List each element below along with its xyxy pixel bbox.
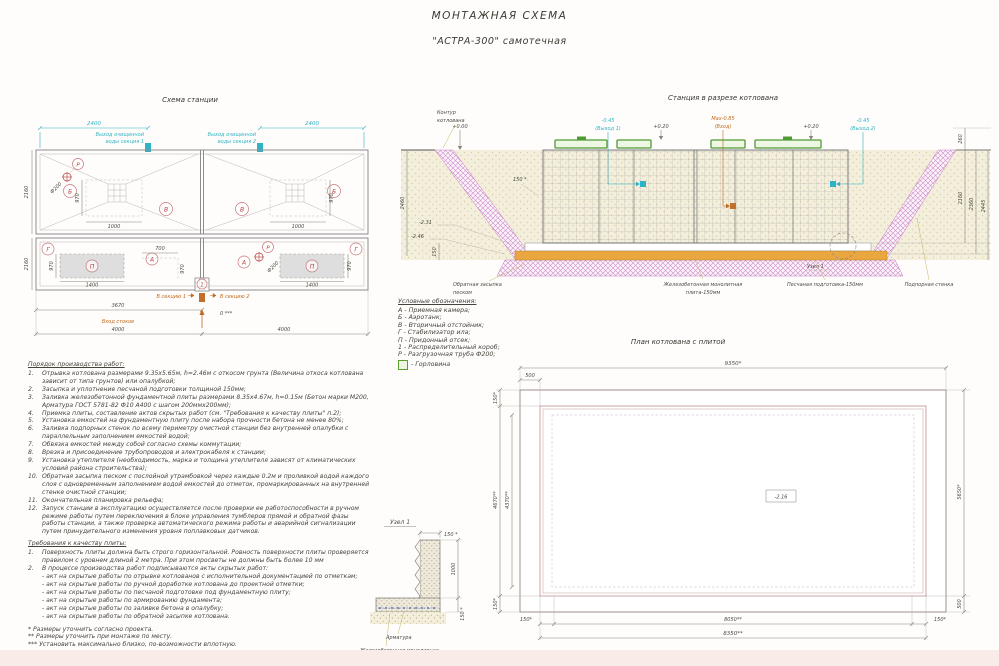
dim-1400-right: 1400 <box>306 283 319 289</box>
slab-detail <box>376 598 440 612</box>
quality-title: Требования к качеству плиты: <box>28 540 372 548</box>
dim-150-b2: 150* <box>934 617 947 623</box>
discharge-pipe-symbol-top <box>62 172 72 182</box>
pit-plan-drawing: План котлована с плитой -2.16 9350* 500 … <box>478 330 999 660</box>
dim-150-top-left: 150* <box>493 391 499 404</box>
to-section2-arrow <box>210 294 216 298</box>
pit-contour <box>520 390 946 612</box>
dim-8350: 8350** <box>723 631 743 637</box>
outlet1-label-line1: Выход очищенной <box>96 132 145 138</box>
legend-item: А - Приемная камера; <box>398 307 576 314</box>
outlet1-pipe-marker <box>145 143 151 152</box>
slab-label-line2: плита-150мм <box>686 290 721 296</box>
elev-slab-top: -2.31 <box>419 220 432 226</box>
compartment-letter-p2: П <box>310 264 315 271</box>
elev-inlet-note: (Вход) <box>715 124 732 130</box>
act-item: - акт на скрытые работы по отрывке котло… <box>42 573 372 581</box>
dim-2160-section: 2160 <box>958 192 964 205</box>
act-item: - акт на скрытые работы по обратной засы… <box>42 613 372 621</box>
drawing-subtitle: "АСТРА-300" самотечная <box>0 36 999 47</box>
dim-150-b1: 150* <box>520 617 533 623</box>
compartment-letter-p1: П <box>90 264 95 271</box>
footnote: * Размеры уточнить согласно проекта. <box>28 626 372 634</box>
hidden-works-acts: - акт на скрытые работы по отрывке котло… <box>28 573 372 621</box>
section-view-title: Станция в разрезе котлована <box>668 94 778 102</box>
compartment-letter-v2: В <box>240 207 244 214</box>
dim-260: 260 <box>958 134 964 144</box>
slab-label-line1: Железобетонная монолитная <box>663 282 743 288</box>
dim-970-bot-right: 970 <box>347 261 353 271</box>
to-section2-label: В секцию 2 <box>220 294 250 300</box>
sheet-bottom-strip <box>0 650 999 666</box>
inlet-label: Вход стоков <box>102 319 134 325</box>
dim-500-bottom: 500 <box>957 599 963 609</box>
legend-item: Б - Аэротанк; <box>398 314 576 321</box>
dim-4000-right: 4000 <box>278 327 291 333</box>
tank-covers <box>555 137 821 149</box>
rebar-label: Арматура <box>385 635 412 641</box>
dim-4370: 4370** <box>505 491 511 509</box>
dim-1000-wall: 1000 <box>451 563 457 576</box>
outlet1-label-line2: воды секция 1 <box>106 139 144 145</box>
drawing-title: МОНТАЖНАЯ СХЕМА <box>0 10 999 22</box>
pit-contour-label-line1: Контур <box>437 110 456 116</box>
sand-prep-label: Песчаная подготовка-150мм <box>787 282 863 288</box>
work-order-item: 6.Заливка подпорных стенок по всему пери… <box>28 425 372 441</box>
work-order-item: 7.Обвязка емкостей между собой согласно … <box>28 441 372 449</box>
elev-0.20-right: +0.20 <box>803 124 818 130</box>
quality-item: 1.Поверхность плиты должна быть строго г… <box>28 549 372 565</box>
outlet2-pipe-marker <box>257 143 263 152</box>
quality-requirements: Требования к качеству плиты: 1.Поверхнос… <box>28 540 372 620</box>
outlet2-pipe-section <box>830 181 836 187</box>
retaining-wall-bottom <box>497 260 903 276</box>
compartment-letter-v1: В <box>164 207 168 214</box>
marker-distribution-box: 1 <box>200 283 204 289</box>
elev-max-inlet: Мах-0.85 <box>711 116 734 122</box>
dim-150-gap: 150 * <box>513 177 527 183</box>
sand-prep-layer <box>515 251 887 260</box>
elev-outlet2-note: (Выход 2) <box>850 126 876 132</box>
elev-0.20-left: +0.20 <box>653 124 668 130</box>
pit-bottom-elevation: -2.16 <box>775 495 788 501</box>
cover-hatch-icon <box>398 360 408 370</box>
to-section1-label: В секцию 1 <box>157 294 187 300</box>
station-plan-title: Схема станции <box>162 96 218 104</box>
dim-5650: 5650* <box>957 484 963 500</box>
dim-1000-right: 1000 <box>292 224 305 230</box>
station-plan-drawing: Схема станции 2400 2400 Выход очищенной … <box>20 88 392 360</box>
dim-2160-top: 2160 <box>24 186 30 199</box>
dim-1000-left: 1000 <box>108 224 121 230</box>
pit-plan-title: План котлована с плитой <box>631 338 726 346</box>
dim-2400-left: 2400 <box>87 121 101 127</box>
legend-title: Условные обозначения: <box>398 298 576 305</box>
discharge-pipe-symbol-bottom <box>254 252 264 262</box>
drawing-sheet: МОНТАЖНАЯ СХЕМА "АСТРА-300" самотечная С… <box>0 0 999 666</box>
act-item: - акт на скрытые работы по ручной дорабо… <box>42 581 372 589</box>
act-item: - акт на скрытые работы по армированию ф… <box>42 597 372 605</box>
node1-callout: Узел 1 <box>807 264 824 270</box>
dim-9350: 9350* <box>725 361 742 367</box>
footnote: *** Установить максимально близко, по-во… <box>28 641 372 649</box>
dim-970-top-right: 970 <box>329 193 335 203</box>
dim-4000-left: 4000 <box>112 327 125 333</box>
retaining-wall-label: Подпорная стенка <box>905 282 954 288</box>
work-order-item: 9.Установка утеплителя (необходимость, м… <box>28 457 372 473</box>
act-item: - акт на скрытые работы по песчаной подг… <box>42 589 372 597</box>
dim-150-bottom-left: 150* <box>493 597 499 610</box>
zero-mark: 0 *** <box>220 311 233 317</box>
work-order-title: Порядок производства работ: <box>28 361 372 369</box>
outlet2-label-line2: воды секция 2 <box>218 139 256 145</box>
section-view-drawing: Станция в разрезе котлована <box>393 88 999 304</box>
dim-150-sand: 150 <box>432 247 438 257</box>
node1-detail-drawing: Узел 1 150 * 1000 150 * Арматура Железоб… <box>358 512 493 664</box>
notes-column: Порядок производства работ: 1.Отрывка ко… <box>28 361 372 649</box>
dim-fi200-top: Ф200 <box>49 181 63 195</box>
act-item: - акт на скрытые работы по заливке бетон… <box>42 605 372 613</box>
elev-outlet2: -0.45 <box>857 118 870 124</box>
inlet-pipe-marker <box>199 293 205 302</box>
work-order-item: 1.Отрывка котлована размерами 9.35х5.65м… <box>28 370 372 386</box>
dim-970-center: 970 <box>180 264 186 274</box>
work-order-item: 10.Обратная засыпка песком с послойной у… <box>28 473 372 497</box>
dim-1400-left: 1400 <box>86 283 99 289</box>
inlet-pipe-section <box>730 203 736 209</box>
dim-3670: 3670 <box>112 303 125 309</box>
quality-item: 2.В процессе производства работ подписыв… <box>28 565 372 573</box>
dim-2445: 2445 <box>981 200 987 213</box>
node1-title: Узел 1 <box>390 519 410 526</box>
elev-outlet1-note: (Выход 1) <box>595 126 621 132</box>
sand-layer-detail <box>370 612 446 624</box>
work-order-item: 12.Запуск станции в эксплуатацию осущест… <box>28 505 372 537</box>
dim-2460: 2460 <box>400 197 406 210</box>
compartment-letter-a1: А <box>149 257 154 264</box>
dim-8050: 8050** <box>724 617 742 623</box>
work-order-item: 3.Заливка железобетонной фундаментной пл… <box>28 394 372 410</box>
pit-contour-label-line2: котлована <box>437 118 465 124</box>
compartment-letter-b1: Б <box>68 189 72 196</box>
outlet1-pipe-section <box>640 181 646 187</box>
compartment-letter-a2: А <box>241 260 246 267</box>
concrete-slab <box>525 243 871 251</box>
dim-2400-right: 2400 <box>305 121 319 127</box>
backfill-label-line1: Обратная засыпка <box>453 282 502 288</box>
outlet2-label-line1: Выход очищенной <box>208 132 257 138</box>
station-tank-section <box>543 150 848 243</box>
dim-150-slab: 150 * <box>460 607 466 621</box>
footnotes: * Размеры уточнить согласно проекта. ** … <box>28 626 372 650</box>
dim-fi200-bottom: Ф200 <box>266 260 280 274</box>
work-order-item: 8.Врезка и присоединение трубопроводов и… <box>28 449 372 457</box>
dim-970-top-left: 970 <box>75 193 81 203</box>
dim-700: 700 <box>155 246 165 252</box>
dim-970-bot-left: 970 <box>49 261 55 271</box>
to-section1-arrow <box>188 294 194 298</box>
work-order-item: 2.Засыпка и уплотнение песчаной подготов… <box>28 386 372 394</box>
dim-2360: 2360 <box>969 198 975 211</box>
dim-500-top: 500 <box>525 373 535 379</box>
elev-0.00: +0.00 <box>452 124 467 130</box>
dim-150-wall: 150 * <box>444 532 458 538</box>
dim-2160-bottom: 2160 <box>24 258 30 271</box>
work-order-item: 11.Окончательная планировка рельефа; <box>28 497 372 505</box>
dim-4670: 4670** <box>493 491 499 509</box>
elev-slab-bottom: -2.46 <box>411 234 424 240</box>
elev-outlet1: -0.45 <box>602 118 615 124</box>
backfill-label-line2: песком <box>453 290 472 296</box>
